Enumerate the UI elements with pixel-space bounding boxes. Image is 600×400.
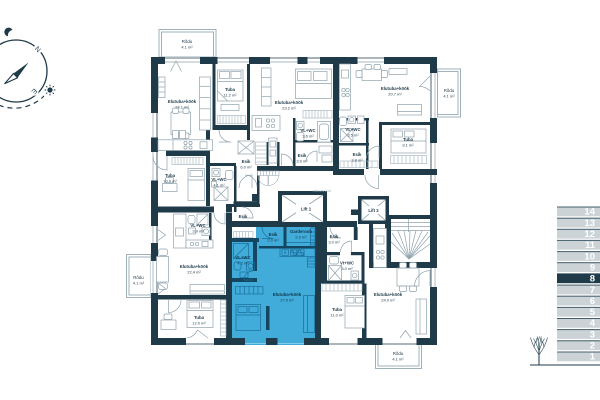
svg-text:9.1 m²: 9.1 m² bbox=[402, 143, 414, 148]
svg-text:11: 11 bbox=[585, 240, 596, 251]
svg-text:3.0 m²: 3.0 m² bbox=[341, 266, 353, 271]
svg-text:10: 10 bbox=[584, 251, 595, 262]
svg-text:3.6 m²: 3.6 m² bbox=[296, 159, 308, 164]
svg-text:3.0 m²: 3.0 m² bbox=[328, 240, 340, 245]
svg-text:2.0 m²: 2.0 m² bbox=[267, 238, 279, 243]
svg-text:Rõdu: Rõdu bbox=[133, 275, 144, 280]
svg-text:3.5 m²: 3.5 m² bbox=[347, 133, 359, 138]
svg-text:24.1 m²: 24.1 m² bbox=[175, 105, 189, 110]
svg-text:3.9 m²: 3.9 m² bbox=[192, 229, 204, 234]
svg-text:Elutuba+köök: Elutuba+köök bbox=[275, 100, 304, 105]
svg-text:7: 7 bbox=[590, 285, 595, 296]
svg-text:Elutuba+köök: Elutuba+köök bbox=[374, 292, 403, 297]
svg-text:Esik: Esik bbox=[242, 159, 251, 164]
svg-text:Esik: Esik bbox=[298, 153, 307, 158]
svg-text:9: 9 bbox=[590, 262, 595, 273]
svg-text:VL+WC: VL+WC bbox=[190, 223, 205, 228]
svg-text:4: 4 bbox=[590, 318, 596, 329]
svg-text:Rõdu: Rõdu bbox=[444, 88, 455, 93]
svg-text:Rõdu: Rõdu bbox=[393, 351, 404, 356]
svg-text:11.2 m²: 11.2 m² bbox=[223, 93, 237, 98]
svg-text:Rõdu: Rõdu bbox=[182, 39, 193, 44]
svg-text:4.1 m²: 4.1 m² bbox=[181, 45, 193, 50]
svg-text:23.2 m²: 23.2 m² bbox=[282, 106, 296, 111]
svg-text:Esik: Esik bbox=[330, 234, 339, 239]
svg-text:2.3 m²: 2.3 m² bbox=[295, 235, 307, 240]
svg-text:Vt+WC: Vt+WC bbox=[340, 261, 354, 266]
svg-text:14: 14 bbox=[584, 207, 595, 218]
svg-text:Elutuba+köök: Elutuba+köök bbox=[273, 292, 302, 297]
svg-text:Elutuba+köök: Elutuba+köök bbox=[180, 264, 209, 269]
svg-text:4.5 m²: 4.5 m² bbox=[237, 220, 249, 225]
svg-text:6: 6 bbox=[590, 296, 595, 307]
svg-text:Esik: Esik bbox=[353, 152, 362, 157]
svg-text:Esik: Esik bbox=[239, 214, 248, 219]
svg-text:3: 3 bbox=[590, 329, 595, 340]
svg-text:Tuba: Tuba bbox=[165, 173, 176, 178]
svg-text:3.8 m²: 3.8 m² bbox=[351, 158, 363, 163]
svg-text:VL+WC: VL+WC bbox=[345, 127, 360, 132]
svg-text:27.0 m²: 27.0 m² bbox=[280, 298, 294, 303]
svg-text:3.6 m²: 3.6 m² bbox=[302, 134, 314, 139]
svg-text:Esik: Esik bbox=[269, 232, 278, 237]
svg-text:4.1 m²: 4.1 m² bbox=[392, 357, 404, 362]
svg-text:Elutuba+köök: Elutuba+köök bbox=[381, 86, 410, 91]
svg-text:Tuba: Tuba bbox=[403, 137, 414, 142]
svg-text:4.1 m²: 4.1 m² bbox=[213, 183, 225, 188]
svg-text:24.0 m²: 24.0 m² bbox=[381, 298, 395, 303]
svg-text:1: 1 bbox=[590, 352, 596, 363]
svg-text:Tuba: Tuba bbox=[225, 87, 236, 92]
svg-text:10.0 m²: 10.0 m² bbox=[163, 179, 177, 184]
svg-text:5: 5 bbox=[590, 307, 596, 318]
svg-text:Tuba: Tuba bbox=[332, 307, 343, 312]
svg-text:PIKKUS 1100: PIKKUS 1100 bbox=[313, 189, 332, 193]
svg-text:VL+WC: VL+WC bbox=[235, 255, 250, 260]
svg-text:4.1 m²: 4.1 m² bbox=[133, 281, 145, 286]
svg-text:13: 13 bbox=[584, 218, 595, 229]
svg-text:Lift 2: Lift 2 bbox=[368, 208, 379, 213]
svg-text:12.0 m²: 12.0 m² bbox=[192, 321, 206, 326]
svg-text:12: 12 bbox=[584, 229, 595, 240]
svg-text:VL+WC: VL+WC bbox=[300, 128, 315, 133]
svg-text:Tuba: Tuba bbox=[194, 315, 205, 320]
svg-text:6.0 m²: 6.0 m² bbox=[240, 165, 252, 170]
svg-text:4.2 m²: 4.2 m² bbox=[237, 261, 249, 266]
svg-text:22.4 m²: 22.4 m² bbox=[187, 270, 201, 275]
svg-text:2: 2 bbox=[590, 341, 595, 352]
svg-text:4.1 m²: 4.1 m² bbox=[443, 94, 455, 99]
svg-text:20.7 m²: 20.7 m² bbox=[388, 92, 402, 97]
svg-text:11.0 m²: 11.0 m² bbox=[330, 313, 344, 318]
svg-text:Elutuba+köök: Elutuba+köök bbox=[168, 99, 197, 104]
svg-text:VL+WC: VL+WC bbox=[211, 177, 226, 182]
svg-text:Lift 1: Lift 1 bbox=[301, 207, 312, 212]
svg-text:8: 8 bbox=[590, 274, 595, 285]
svg-text:Garderoob: Garderoob bbox=[290, 229, 312, 234]
